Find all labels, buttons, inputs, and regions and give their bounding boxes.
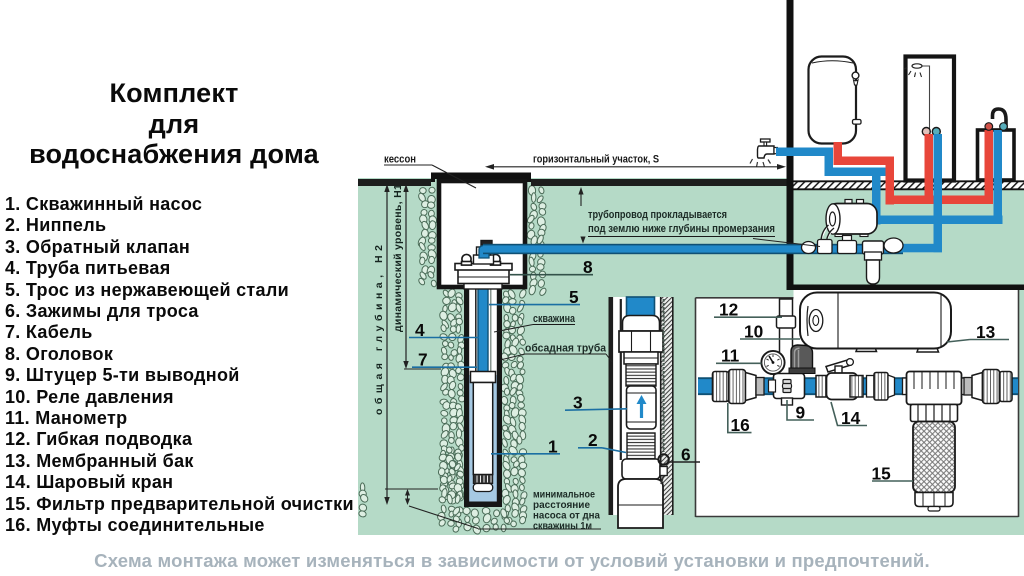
svg-text:11: 11 — [721, 346, 740, 366]
svg-text:16: 16 — [731, 415, 750, 435]
svg-text:9: 9 — [796, 402, 806, 422]
svg-text:8: 8 — [583, 257, 593, 277]
svg-text:обсадная труба: обсадная труба — [525, 343, 607, 355]
svg-text:3: 3 — [573, 393, 583, 413]
svg-text:2: 2 — [588, 430, 598, 450]
svg-text:12: 12 — [719, 299, 738, 319]
svg-text:10: 10 — [744, 321, 763, 341]
svg-text:трубопровод прокладывается: трубопровод прокладывается — [588, 209, 727, 221]
svg-text:скважины 1м: скважины 1м — [533, 520, 592, 532]
svg-text:под землю ниже глубины промерз: под землю ниже глубины промерзания — [588, 223, 775, 235]
svg-text:1: 1 — [548, 436, 558, 456]
svg-text:5: 5 — [569, 287, 579, 307]
svg-text:13: 13 — [976, 322, 995, 342]
svg-text:15: 15 — [872, 463, 892, 483]
svg-text:4: 4 — [415, 320, 425, 340]
svg-text:горизонтальный участок, S: горизонтальный участок, S — [533, 154, 659, 166]
svg-text:6: 6 — [681, 444, 691, 464]
svg-text:общая глубина, Н2: общая глубина, Н2 — [373, 245, 385, 415]
svg-text:кессон: кессон — [384, 154, 416, 166]
svg-text:14: 14 — [841, 408, 861, 428]
svg-text:7: 7 — [418, 350, 428, 370]
svg-text:динамический уровень, Н1: динамический уровень, Н1 — [392, 184, 404, 332]
svg-text:скважина: скважина — [533, 313, 576, 325]
